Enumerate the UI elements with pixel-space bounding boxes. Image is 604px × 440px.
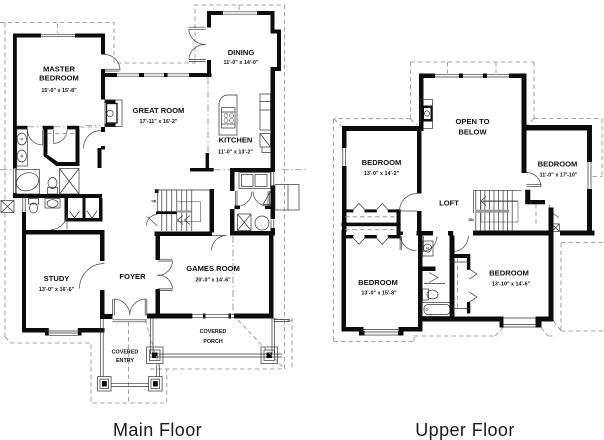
svg-text:MASTER: MASTER: [43, 65, 76, 74]
svg-text:BEDROOM: BEDROOM: [538, 160, 578, 169]
svg-text:FOYER: FOYER: [119, 272, 146, 281]
svg-text:COVERED: COVERED: [200, 329, 227, 335]
svg-text:11'-0" x 17'-10": 11'-0" x 17'-10": [540, 173, 578, 179]
svg-text:13'-10" x 14'-6": 13'-10" x 14'-6": [492, 282, 531, 288]
svg-text:PORCH: PORCH: [203, 339, 223, 345]
svg-text:DINING: DINING: [228, 48, 255, 57]
svg-text:BEDROOM: BEDROOM: [489, 269, 529, 278]
svg-text:OPEN TO: OPEN TO: [455, 117, 489, 126]
svg-text:COVERED: COVERED: [112, 350, 139, 356]
svg-text:LOFT: LOFT: [439, 199, 459, 208]
svg-text:BELOW: BELOW: [458, 128, 487, 137]
svg-text:GREAT ROOM: GREAT ROOM: [133, 106, 185, 115]
svg-text:BEDROOM: BEDROOM: [39, 74, 79, 83]
svg-text:15'-0" x 15'-8": 15'-0" x 15'-8": [41, 88, 77, 94]
svg-text:20'-0" x 14'-6": 20'-0" x 14'-6": [195, 278, 231, 284]
svg-text:Upper Floor: Upper Floor: [415, 420, 514, 440]
svg-text:13'-0" x 15'-8": 13'-0" x 15'-8": [361, 291, 397, 297]
svg-text:Main Floor: Main Floor: [113, 420, 202, 440]
svg-text:13'-0" x 14'-2": 13'-0" x 14'-2": [364, 171, 400, 177]
svg-text:17'-11" x 16'-2": 17'-11" x 16'-2": [140, 119, 178, 125]
svg-text:DN: DN: [469, 218, 475, 222]
svg-text:GAMES ROOM: GAMES ROOM: [186, 264, 240, 273]
svg-text:11'-0" x 13'-2": 11'-0" x 13'-2": [218, 150, 253, 156]
svg-text:11'-0" x 14'-0": 11'-0" x 14'-0": [224, 60, 259, 66]
svg-text:13'-0" x 16'-6": 13'-0" x 16'-6": [39, 287, 75, 293]
svg-text:BEDROOM: BEDROOM: [362, 158, 402, 167]
svg-text:KITCHEN: KITCHEN: [219, 136, 253, 145]
svg-text:ENTRY: ENTRY: [116, 358, 134, 364]
svg-text:BEDROOM: BEDROOM: [358, 278, 398, 287]
svg-text:STUDY: STUDY: [44, 274, 70, 283]
